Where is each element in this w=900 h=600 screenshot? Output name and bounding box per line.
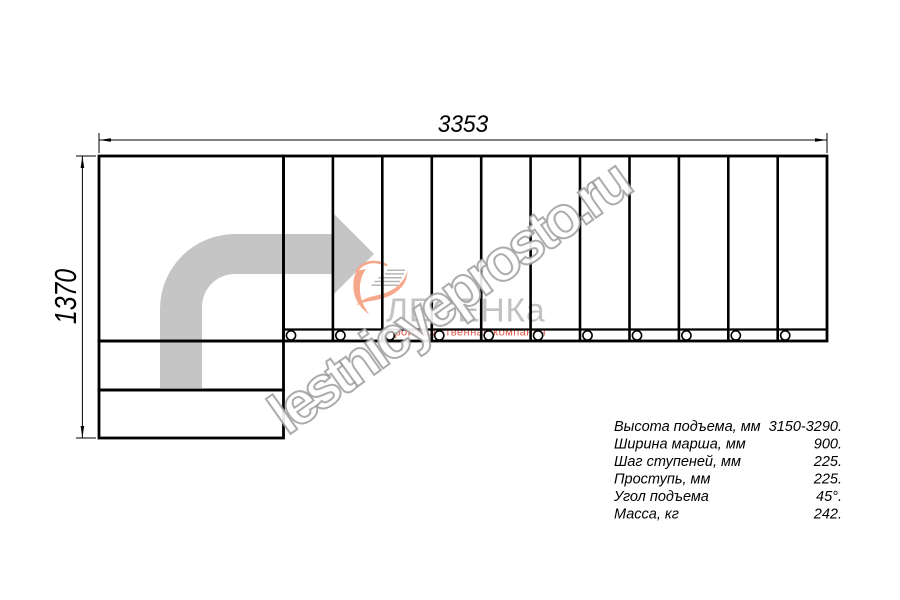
svg-text:242.: 242.	[813, 507, 842, 523]
svg-text:Угол подъема: Угол подъема	[613, 489, 709, 505]
svg-text:900.: 900.	[814, 437, 842, 453]
svg-text:225.: 225.	[813, 472, 842, 488]
svg-text:45°.: 45°.	[816, 489, 842, 505]
svg-text:Шаг ступеней, мм: Шаг ступеней, мм	[614, 454, 741, 470]
svg-text:Ширина марша, мм: Ширина марша, мм	[614, 437, 746, 453]
svg-text:3150-3290.: 3150-3290.	[769, 419, 842, 435]
svg-text:3353: 3353	[438, 110, 488, 137]
svg-text:225.: 225.	[813, 454, 842, 470]
svg-text:1370: 1370	[48, 269, 82, 324]
svg-text:Высота подъема, мм: Высота подъема, мм	[614, 419, 761, 435]
svg-text:Масса, кг: Масса, кг	[614, 507, 679, 523]
svg-text:Проступь, мм: Проступь, мм	[614, 472, 710, 488]
